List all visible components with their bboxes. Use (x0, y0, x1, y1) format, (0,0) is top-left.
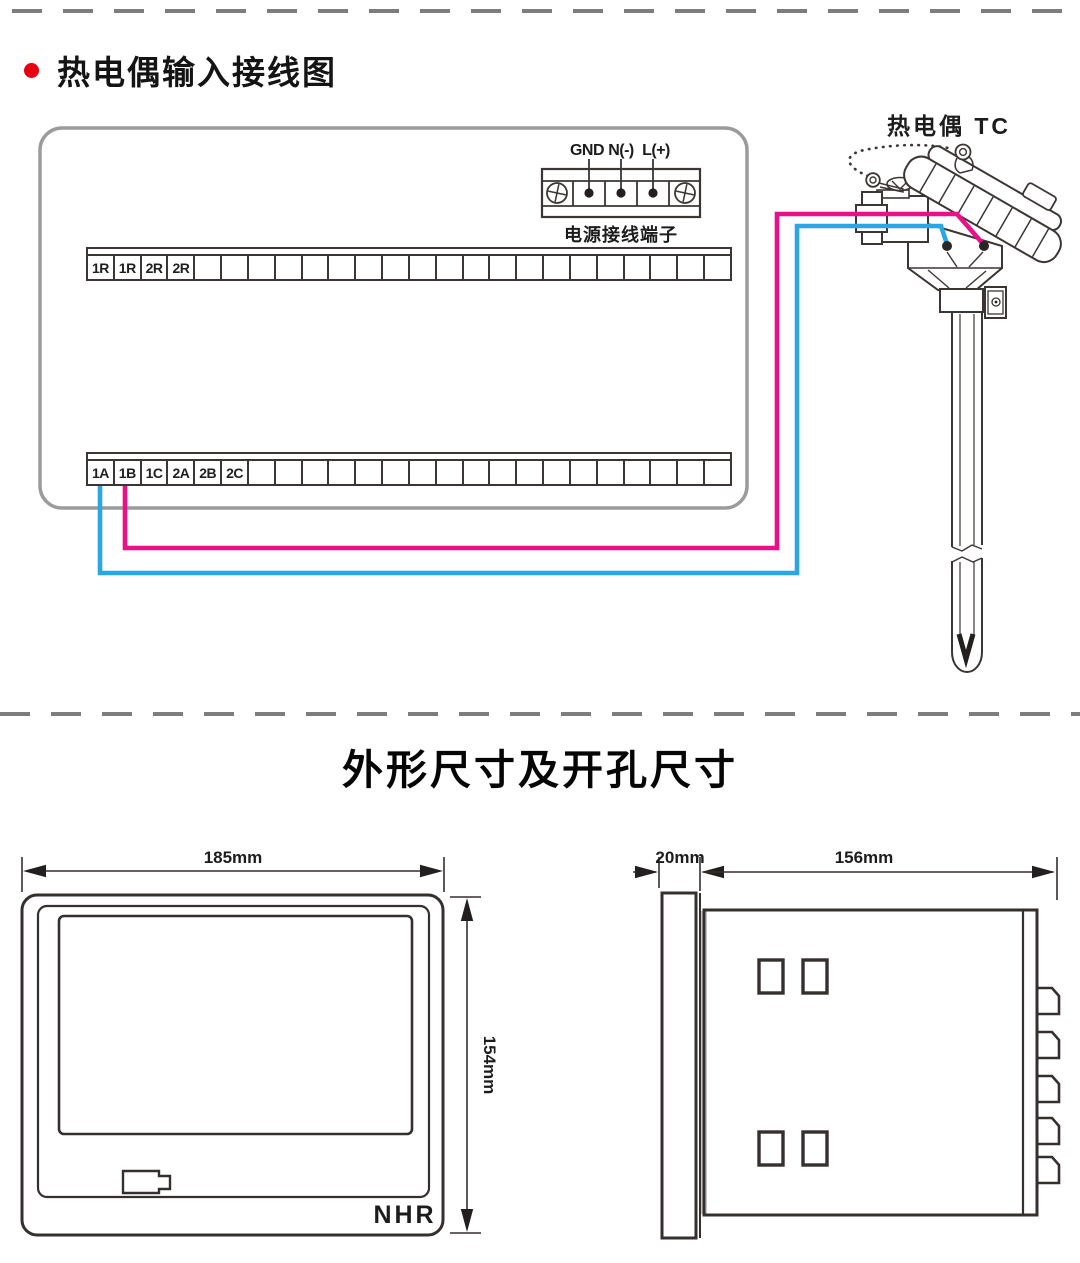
svg-text:R: R (415, 1201, 433, 1229)
terminal-cell (625, 461, 652, 484)
terminal-cell (571, 256, 598, 279)
terminal-cell (303, 256, 330, 279)
terminal-cell (356, 256, 383, 279)
terminal-cell: 1C (142, 461, 169, 484)
terminal-cell (222, 256, 249, 279)
dimensions-section-title: 外形尺寸及开孔尺寸 (0, 736, 1080, 796)
terminal-cell (276, 461, 303, 484)
wiring-section-header: 热电偶输入接线图 (24, 46, 337, 94)
terminal-cell (598, 256, 625, 279)
mounting-claw (1037, 988, 1059, 1014)
terminal-cell: 2A (168, 461, 195, 484)
terminal-cell (517, 256, 544, 279)
terminal-cell (276, 256, 303, 279)
terminal-cell (464, 461, 491, 484)
terminal-cell: 1R (88, 256, 115, 279)
front-width-label: 185mm (204, 848, 263, 867)
terminal-cell (544, 461, 571, 484)
wiring-section-title: 热电偶输入接线图 (57, 46, 337, 94)
terminal-cell (329, 461, 356, 484)
terminal-cell (705, 461, 730, 484)
front-connector-port (123, 1171, 170, 1193)
mounting-claw (1037, 1157, 1059, 1183)
terminal-cell (678, 461, 705, 484)
terminal-cell (356, 461, 383, 484)
terminal-strip-bottom: 1A1B1C2A2B2C (86, 452, 732, 486)
strip-cells: 1A1B1C2A2B2C (88, 461, 730, 484)
wire-terminal-dot (979, 241, 989, 251)
mounting-claw (1037, 1032, 1059, 1058)
terminal-cell (651, 461, 678, 484)
power-label-gnd: GND (570, 142, 604, 159)
terminal-cell (303, 461, 330, 484)
terminal-cell: 2B (195, 461, 222, 484)
front-view-drawing (22, 857, 481, 1235)
terminal-cell (490, 256, 517, 279)
terminal-strip-top: 1R1R2R2R (86, 247, 732, 281)
terminal-cell (249, 461, 276, 484)
terminal-cell: 2R (142, 256, 169, 279)
terminal-cell (383, 256, 410, 279)
terminal-cell (651, 256, 678, 279)
terminal-cell (195, 256, 222, 279)
terminal-cell: 1B (115, 461, 142, 484)
thermocouple-drawing (849, 125, 1080, 672)
strip-rail (88, 454, 730, 461)
svg-text:N: N (373, 1201, 390, 1229)
terminal-cell (490, 461, 517, 484)
terminal-cell: 1A (88, 461, 115, 484)
side-view-drawing (633, 857, 1059, 1238)
terminal-cell (598, 461, 625, 484)
diagram-artwork: GND N(-) L(+) 电源接线端子 热电偶 TC (0, 0, 1080, 1263)
power-label-l: L(+) (642, 142, 670, 159)
terminal-cell (437, 461, 464, 484)
power-terminal-caption: 电源接线端子 (564, 224, 678, 245)
terminal-cell (329, 256, 356, 279)
power-label-n: N(-) (608, 142, 634, 159)
terminal-cell: 1R (115, 256, 142, 279)
terminal-cell (249, 256, 276, 279)
strip-rail (88, 249, 730, 256)
thermocouple-label: 热电偶 TC (887, 113, 1011, 139)
front-height-label: 154mm (480, 1036, 499, 1095)
svg-text:H: H (394, 1201, 411, 1229)
terminal-cell (705, 256, 730, 279)
probe-junction-mark (959, 634, 973, 659)
terminal-cell (383, 461, 410, 484)
terminal-cell (678, 256, 705, 279)
terminal-cell: 2C (222, 461, 249, 484)
strip-cells: 1R1R2R2R (88, 256, 730, 279)
terminal-cell: 2R (168, 256, 195, 279)
dimension-154mm (450, 897, 481, 1233)
terminal-cell (625, 256, 652, 279)
wire-terminal-dot (942, 241, 952, 251)
terminal-cell (544, 256, 571, 279)
terminal-cell (410, 461, 437, 484)
side-body-label: 156mm (835, 848, 894, 867)
terminal-cell (410, 256, 437, 279)
side-depth-label: 20mm (655, 848, 704, 867)
red-bullet-icon (24, 63, 39, 78)
nhr-logo: N H R (373, 1201, 433, 1229)
mounting-claw (1037, 1118, 1059, 1144)
terminal-cell (437, 256, 464, 279)
page: GND N(-) L(+) 电源接线端子 热电偶 TC (0, 0, 1080, 1263)
terminal-cell (464, 256, 491, 279)
terminal-cell (571, 461, 598, 484)
mounting-claw (1037, 1076, 1059, 1102)
terminal-cell (517, 461, 544, 484)
